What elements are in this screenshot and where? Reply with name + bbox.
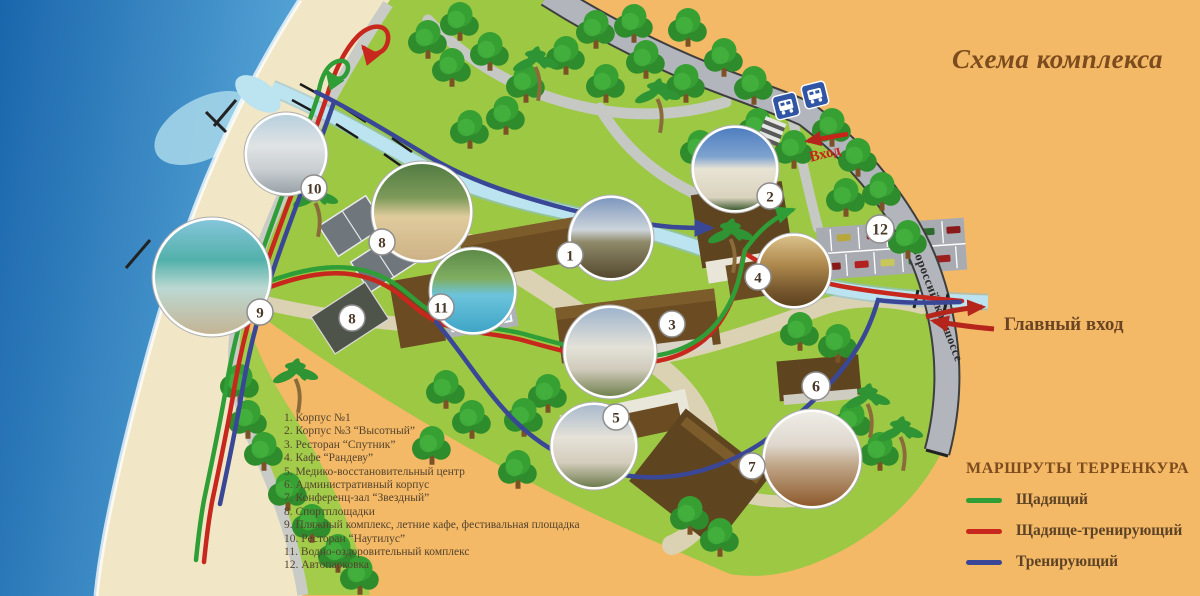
route-label: Тренирующий <box>1016 553 1118 571</box>
legend-item: 12. Автопарковка <box>284 559 580 572</box>
routes-legend-title: МАРШРУТЫ ТЕРРЕНКУРА <box>966 460 1189 478</box>
marker-number: 9 <box>256 305 264 321</box>
marker-number: 1 <box>566 248 574 264</box>
photo-hall <box>765 412 859 506</box>
route-label: Щадяще-тренирующий <box>1016 522 1182 540</box>
legend-item: 8. Спортплощадки <box>284 506 580 519</box>
marker-number: 3 <box>668 317 676 333</box>
route-color-chip <box>966 560 1002 565</box>
marker-number: 4 <box>754 270 762 286</box>
page-title: Схема комплекса <box>952 44 1197 75</box>
marker-number: 6 <box>812 379 820 396</box>
route-legend-row: Тренирующий <box>966 553 1189 571</box>
bus-stop-icon <box>771 91 800 120</box>
marker-number: 2 <box>766 189 774 205</box>
legend-item: 7. Конференц-зал “Звездный” <box>284 492 580 505</box>
legend-item: 4. Кафе “Рандеву” <box>284 452 580 465</box>
route-legend-row: Щадящий <box>966 491 1189 509</box>
photo-building1 <box>571 198 651 278</box>
marker-11[interactable]: 11 <box>428 247 517 335</box>
marker-12[interactable]: 12 <box>866 215 894 243</box>
marker-number: 8 <box>348 311 356 327</box>
resort-scheme-page: Новороссийское шоссе <box>0 0 1200 596</box>
legend-item: 10. Ресторан “Наутилус” <box>284 533 580 546</box>
marker-number: 11 <box>434 300 448 316</box>
legend-list: 1. Корпус №12. Корпус №3 “Высотный”3. Ре… <box>284 412 580 573</box>
marker-number: 12 <box>872 222 888 239</box>
legend-item: 5. Медико-восстановительный центр <box>284 466 580 479</box>
marker-number: 10 <box>307 181 322 197</box>
marker-number: 8 <box>378 235 386 251</box>
marker-8[interactable]: 8 <box>339 305 365 331</box>
marker-number: 5 <box>612 410 620 426</box>
legend-item: 11. Водно-оздоровительный комплекс <box>284 546 580 559</box>
main-entrance-label: Главный вход <box>1004 314 1124 335</box>
route-color-chip <box>966 498 1002 503</box>
legend-item: 2. Корпус №3 “Высотный” <box>284 425 580 438</box>
legend-item: 3. Ресторан “Спутник” <box>284 439 580 452</box>
marker-number: 7 <box>748 459 756 475</box>
routes-legend: МАРШРУТЫ ТЕРРЕНКУРА ЩадящийЩадяще-тренир… <box>966 460 1189 571</box>
legend-item: 1. Корпус №1 <box>284 412 580 425</box>
legend-item: 9. Пляжный комплекс, летние кафе, фестив… <box>284 519 580 532</box>
legend-item: 6. Административный корпус <box>284 479 580 492</box>
marker-6[interactable]: 6 <box>802 372 830 400</box>
route-legend-row: Щадяще-тренирующий <box>966 522 1189 540</box>
route-color-chip <box>966 529 1002 534</box>
bus-stop-icon <box>800 80 829 109</box>
photo-restaurant <box>566 308 654 396</box>
route-label: Щадящий <box>1016 491 1088 509</box>
marker-9[interactable]: 9 <box>152 217 273 337</box>
